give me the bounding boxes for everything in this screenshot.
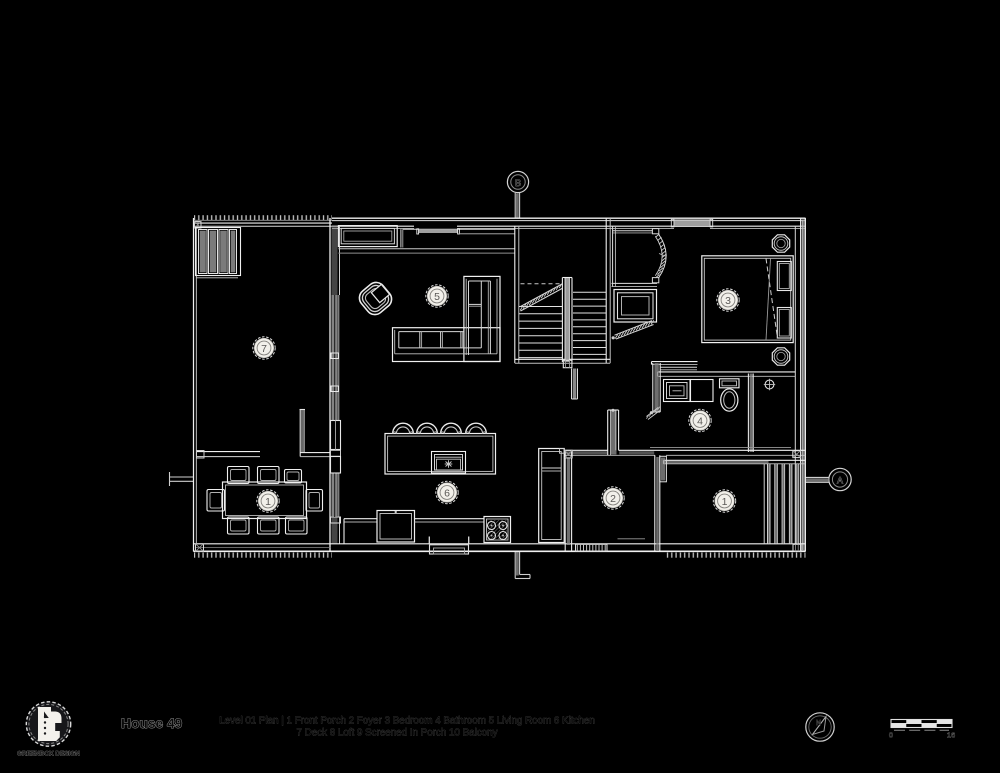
svg-text:GREENBOX DESIGN: GREENBOX DESIGN: [17, 751, 80, 758]
svg-text:7 Deck 8 Loft 9 Screened In Po: 7 Deck 8 Loft 9 Screened In Porch 10 Bal…: [297, 728, 498, 739]
svg-text:N: N: [816, 720, 821, 727]
svg-text:Level 01 Plan | 1 Front Porch: Level 01 Plan | 1 Front Porch 2 Foyer 3 …: [219, 716, 595, 727]
svg-text:House 49: House 49: [121, 716, 183, 731]
svg-text:0: 0: [889, 731, 893, 740]
svg-text:1: 1: [722, 496, 728, 508]
svg-text:A: A: [837, 476, 843, 486]
svg-text:5: 5: [434, 291, 440, 303]
svg-text:2: 2: [610, 493, 616, 505]
svg-text:7: 7: [261, 343, 267, 355]
svg-text:16: 16: [947, 731, 955, 740]
svg-text:4: 4: [697, 415, 703, 427]
svg-text:1: 1: [265, 496, 271, 508]
svg-text:6: 6: [444, 487, 450, 499]
svg-text:B: B: [515, 178, 521, 188]
svg-text:3: 3: [725, 295, 731, 307]
